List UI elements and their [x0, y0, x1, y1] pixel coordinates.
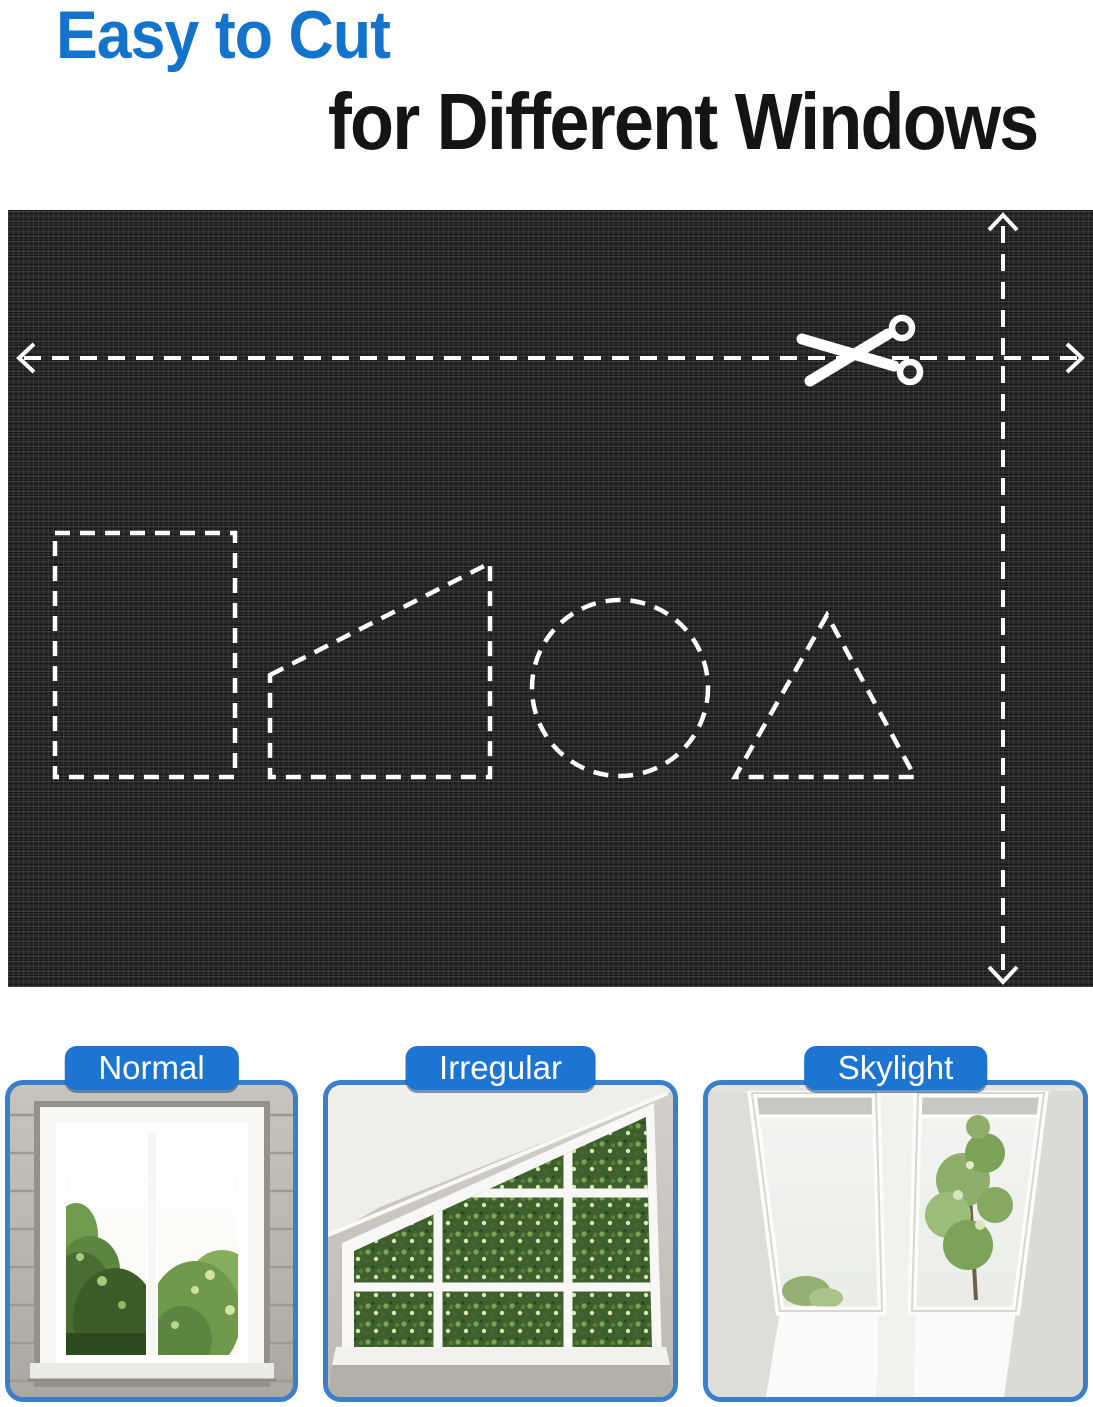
window-card-normal-badge: Normal — [64, 1046, 238, 1090]
cut-shape-triangle — [735, 615, 915, 777]
window-photo-irregular — [323, 1080, 678, 1402]
cut-shape-rectangle — [55, 533, 235, 777]
window-photo-skylight — [703, 1080, 1088, 1402]
window-card-skylight: Skylight — [703, 1046, 1088, 1402]
page-title-line2: for Different Windows — [327, 76, 1037, 168]
cut-shape-circle — [532, 600, 708, 776]
cut-guides-overlay — [8, 210, 1093, 987]
window-card-normal: Normal — [5, 1046, 298, 1402]
scissors-icon — [802, 318, 920, 382]
cut-shape-trapezoid — [270, 563, 490, 777]
window-photo-normal — [5, 1080, 298, 1402]
page-title-line1: Easy to Cut — [56, 0, 390, 74]
window-card-irregular-badge: Irregular — [405, 1046, 596, 1090]
window-type-cards: Normal — [5, 1046, 1088, 1402]
window-card-skylight-badge: Skylight — [804, 1046, 988, 1090]
vertical-height-arrow — [989, 215, 1017, 982]
fabric-panel — [8, 210, 1093, 987]
window-card-irregular: Irregular — [323, 1046, 678, 1402]
